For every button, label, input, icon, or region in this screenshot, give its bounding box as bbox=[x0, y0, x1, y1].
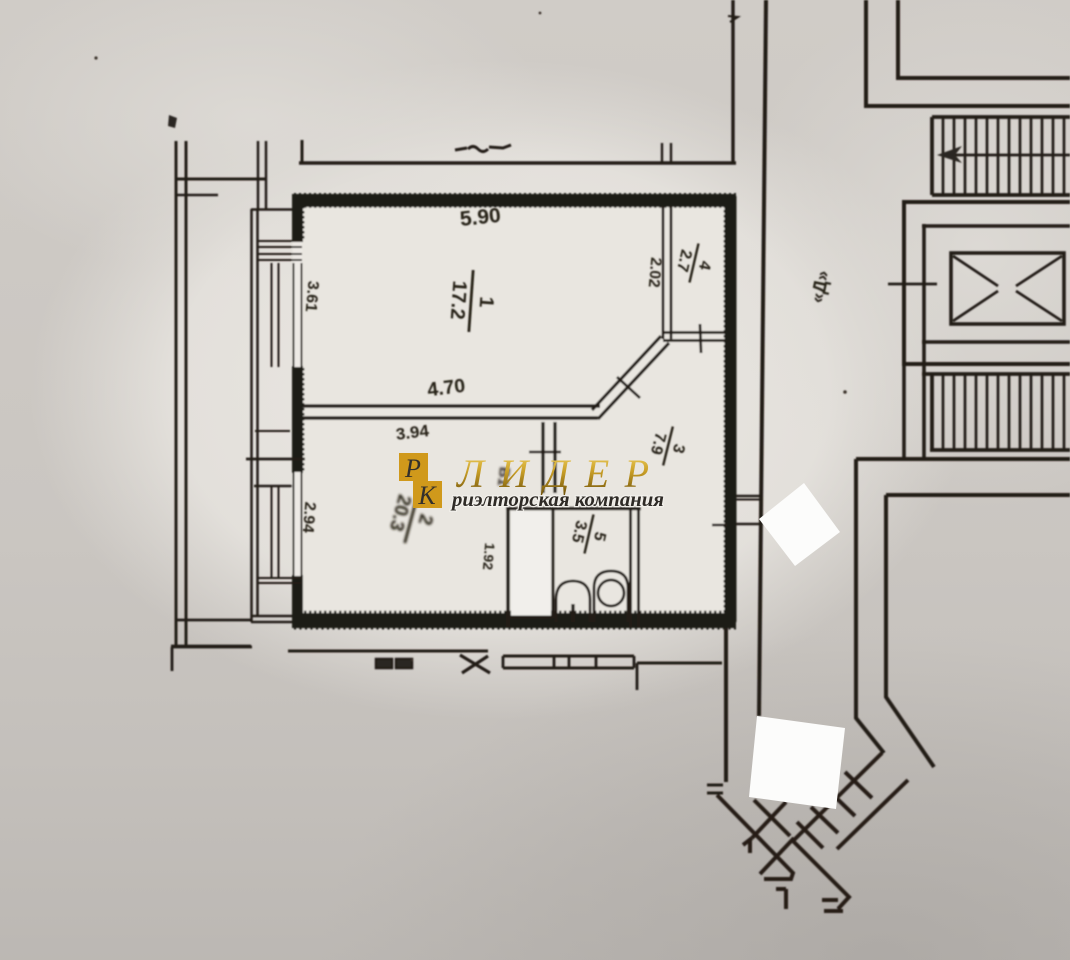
svg-text:1: 1 bbox=[475, 296, 498, 309]
svg-text:5.90: 5.90 bbox=[459, 204, 502, 231]
svg-text:3.94: 3.94 bbox=[395, 421, 431, 444]
svg-text:К: К bbox=[417, 481, 437, 510]
svg-text:2.02: 2.02 bbox=[645, 257, 665, 289]
svg-text:1.92: 1.92 bbox=[480, 542, 498, 571]
svg-text:4.70: 4.70 bbox=[426, 375, 467, 401]
svg-text:риэлторская компания: риэлторская компания bbox=[450, 487, 664, 511]
svg-text:17.2: 17.2 bbox=[446, 280, 471, 320]
svg-text:Р: Р bbox=[404, 454, 421, 483]
svg-text:3.61: 3.61 bbox=[302, 280, 322, 313]
svg-text:2.94: 2.94 bbox=[299, 501, 319, 534]
